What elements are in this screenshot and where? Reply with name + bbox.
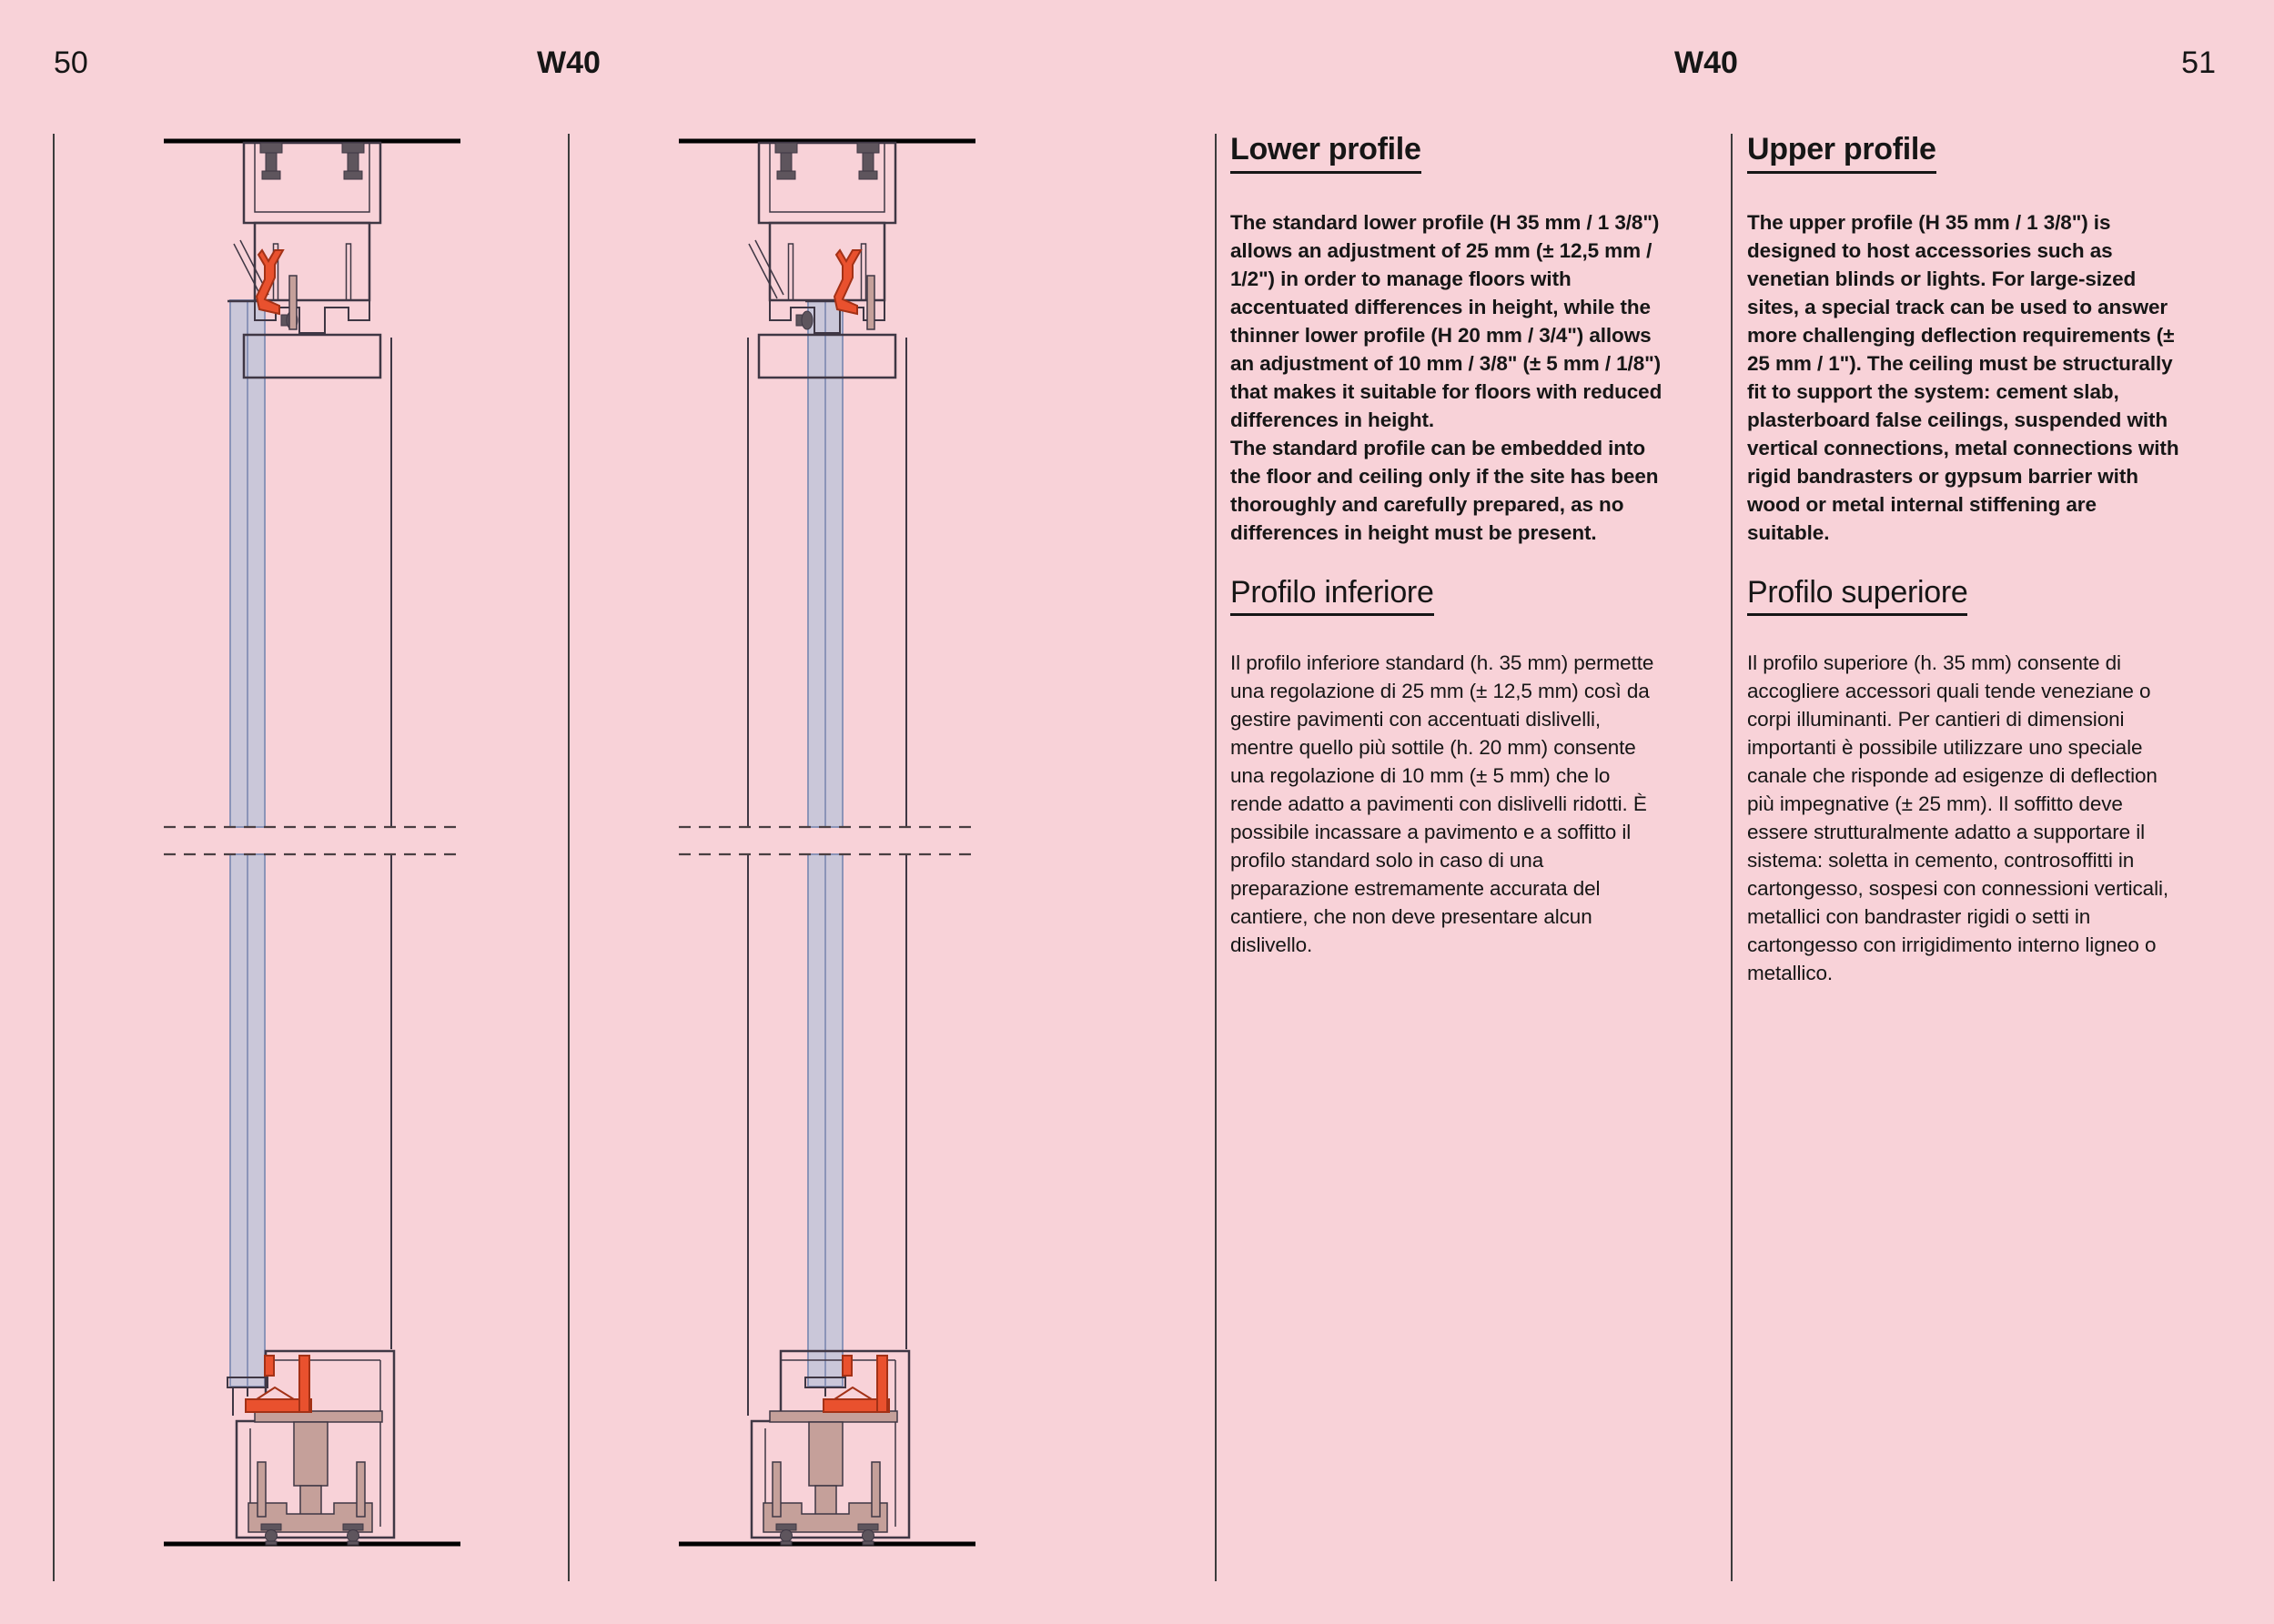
body-lower-profile-en: The standard lower profile (H 35 mm / 1 …	[1230, 208, 1665, 547]
heading-text: Profilo inferiore	[1230, 577, 1434, 617]
catalog-spread: { "left_page": { "page_number": "50", "t…	[0, 0, 2274, 1624]
heading-text: Upper profile	[1747, 134, 1936, 174]
column-rule-1	[1215, 134, 1217, 1581]
column-lower-profile: Lower profile The standard lower profile…	[1230, 134, 1665, 959]
page-number-left: 50	[54, 45, 88, 81]
page-number-right: 51	[2181, 45, 2216, 81]
body-lower-profile-it: Il profilo inferiore standard (h. 35 mm)…	[1230, 649, 1665, 959]
section-drawing-right	[672, 127, 982, 1592]
heading-text: Profilo superiore	[1747, 577, 1967, 617]
series-title-right: W40	[1674, 45, 1738, 81]
margin-rule-1	[53, 134, 55, 1581]
body-upper-profile-en: The upper profile (H 35 mm / 1 3/8") is …	[1747, 208, 2182, 547]
heading-lower-profile-en: Lower profile	[1230, 134, 1665, 174]
section-drawing-left	[157, 127, 467, 1592]
technical-drawing-2	[672, 127, 982, 1592]
body-upper-profile-it: Il profilo superiore (h. 35 mm) consente…	[1747, 649, 2182, 987]
heading-text: Lower profile	[1230, 134, 1421, 174]
technical-drawing-1	[157, 127, 467, 1592]
column-upper-profile: Upper profile The upper profile (H 35 mm…	[1747, 134, 2182, 987]
margin-rule-2	[568, 134, 570, 1581]
heading-lower-profile-it: Profilo inferiore	[1230, 577, 1665, 617]
column-rule-2	[1731, 134, 1733, 1581]
series-title-left: W40	[537, 45, 601, 81]
heading-upper-profile-it: Profilo superiore	[1747, 577, 2182, 617]
heading-upper-profile-en: Upper profile	[1747, 134, 2182, 174]
